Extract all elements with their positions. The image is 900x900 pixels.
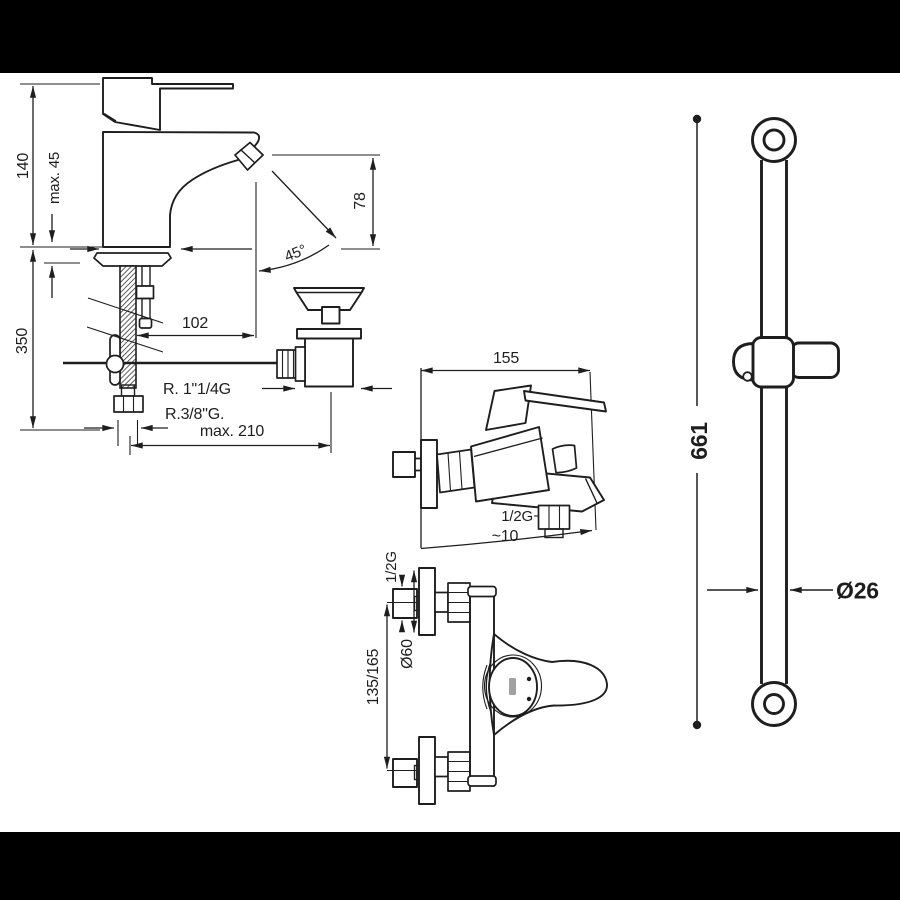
front-trunk-top-cap xyxy=(468,587,496,597)
dim-78-label: 78 xyxy=(352,192,369,210)
hose-thread-label: R.3/8"G. xyxy=(165,406,224,423)
side-check-valve xyxy=(539,506,570,530)
rail-bottom-mount-inner xyxy=(765,695,784,714)
front-top-escutcheon xyxy=(419,568,435,635)
side-union-nut xyxy=(437,450,475,493)
rail-slider-clamp xyxy=(753,338,794,388)
dim-max45-label: max. 45 xyxy=(46,152,63,204)
front-bottom-escutcheon xyxy=(419,737,435,804)
technical-drawing-sheet: 140 max. 45 350 xyxy=(0,0,900,900)
dim-centers-label: 135/165 xyxy=(365,648,382,705)
letterbox-top xyxy=(0,0,900,73)
side-outlet-thread-label: 1/2G xyxy=(501,508,533,525)
waste-mid-flange xyxy=(297,329,361,339)
dim-661-dot-bottom xyxy=(693,721,701,729)
front-top-pipe xyxy=(435,593,448,613)
front-screw-dot-bottom xyxy=(527,697,531,701)
hose-nut xyxy=(114,396,143,412)
dim-661-label: 661 xyxy=(686,422,712,460)
dim-d60-label: Ø60 xyxy=(399,639,416,669)
front-inlet-thread-label: 1/2G xyxy=(383,551,400,583)
dim-155-label: 155 xyxy=(493,350,519,367)
dim-140-label: 140 xyxy=(15,153,32,179)
valve-knob xyxy=(107,356,124,373)
mounting-flange xyxy=(94,253,171,266)
rail-slider-pin xyxy=(743,372,752,381)
dim-offset-label: ~10 xyxy=(492,528,519,545)
side-supply-block xyxy=(393,452,415,477)
front-screw-dot-top xyxy=(527,677,531,681)
letterbox-bottom xyxy=(0,832,900,900)
rail-handset-holder xyxy=(791,343,839,378)
dim-max210-label: max. 210 xyxy=(200,423,265,440)
front-bottom-pipe xyxy=(435,757,448,777)
side-diverter-knob xyxy=(553,445,577,472)
mounting-nut xyxy=(137,286,154,299)
waste-collar xyxy=(296,347,306,381)
waste-body xyxy=(305,339,353,387)
mounting-stud-tip xyxy=(140,319,152,329)
front-trunk-bottom-cap xyxy=(468,776,496,786)
side-escutcheon xyxy=(421,440,437,508)
waste-rod-socket xyxy=(322,307,340,324)
dim-d26-label: Ø26 xyxy=(836,578,879,604)
front-bottom-supply-block xyxy=(393,759,417,787)
dim-102-label: 102 xyxy=(182,315,208,332)
drawing-canvas: 140 max. 45 350 xyxy=(0,0,900,900)
dim-350-label: 350 xyxy=(14,328,31,354)
drain-thread-label: R. 1"1/4G xyxy=(163,381,231,398)
rail-top-mount-inner xyxy=(764,130,784,150)
front-logo-mark xyxy=(509,678,516,695)
